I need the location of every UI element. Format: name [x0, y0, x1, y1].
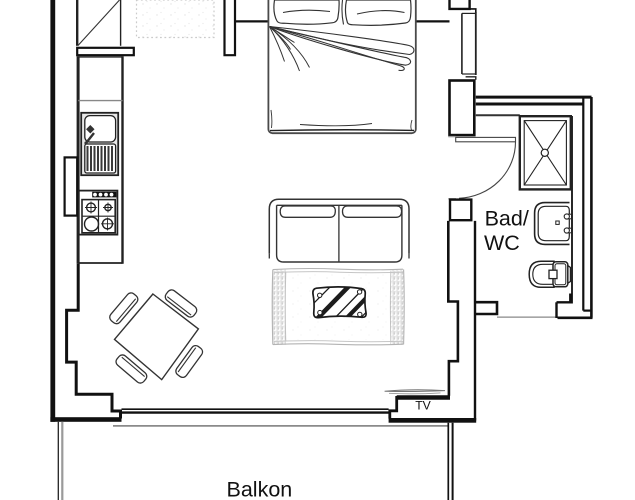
svg-text:Balkon: Balkon [227, 477, 293, 500]
svg-text:WC: WC [484, 231, 520, 255]
svg-text:TV: TV [415, 398, 431, 412]
svg-text:Bad/: Bad/ [485, 206, 529, 230]
